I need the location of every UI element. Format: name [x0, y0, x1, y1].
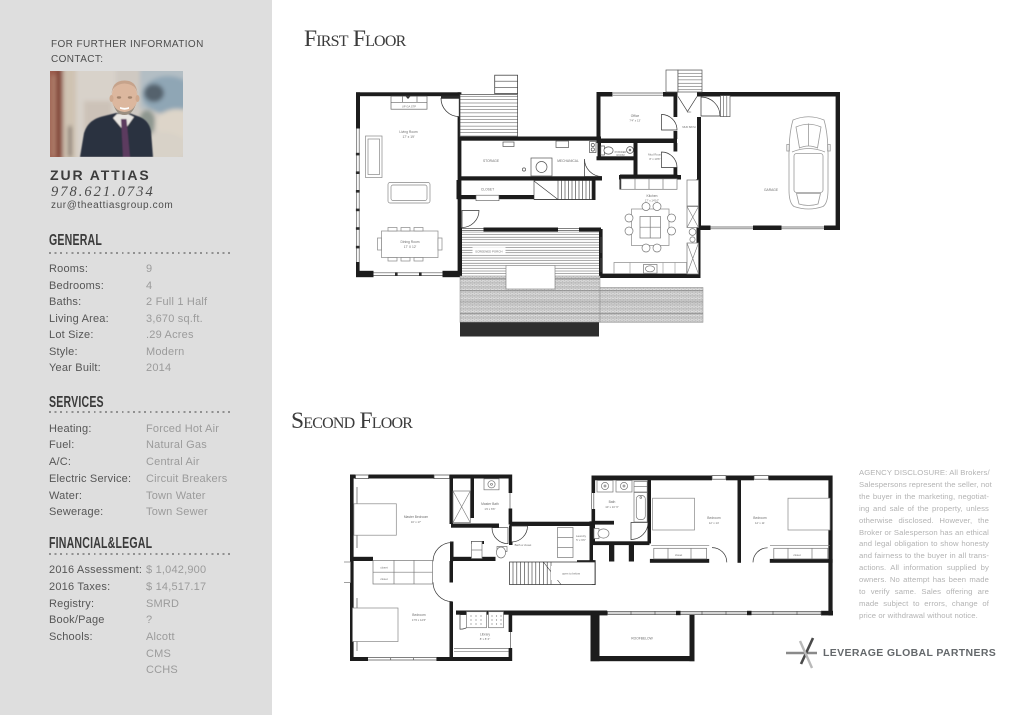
- svg-text:Master Bedroom: Master Bedroom: [404, 515, 429, 519]
- svg-text:12' x 11': 12' x 11': [755, 521, 766, 525]
- svg-text:closet: closet: [675, 553, 683, 557]
- svg-text:Library: Library: [480, 633, 490, 637]
- svg-text:WIC: WIC: [687, 112, 692, 114]
- svg-text:8' x 10'6": 8' x 10'6": [649, 157, 660, 161]
- svg-text:17' x 14'10": 17' x 14'10": [645, 199, 659, 203]
- svg-text:Office: Office: [631, 114, 640, 118]
- svg-text:Bedroom: Bedroom: [707, 516, 721, 520]
- svg-text:CLOSET: CLOSET: [481, 188, 494, 192]
- svg-text:open to below: open to below: [562, 572, 581, 576]
- svg-text:UP GA STP: UP GA STP: [402, 104, 416, 108]
- svg-text:5' x 6'6": 5' x 6'6": [576, 538, 586, 542]
- svg-text:17' X 12': 17' X 12': [404, 245, 417, 249]
- svg-text:MUD BATH: MUD BATH: [682, 125, 695, 129]
- svg-text:closet: closet: [380, 566, 388, 570]
- svg-text:Dining Room: Dining Room: [400, 240, 419, 244]
- svg-text:Bedroom: Bedroom: [412, 613, 426, 617]
- svg-text:ROOFBELOW: ROOFBELOW: [631, 637, 653, 641]
- svg-text:Bath w closet: Bath w closet: [515, 543, 532, 547]
- svg-text:1'0 x 6'6": 1'0 x 6'6": [484, 507, 495, 511]
- svg-text:Living Room: Living Room: [399, 130, 418, 134]
- svg-text:closet: closet: [380, 577, 388, 581]
- svg-text:SCREENED PORCH: SCREENED PORCH: [475, 250, 502, 254]
- svg-text:17'6 x 12'6": 17'6 x 12'6": [412, 618, 426, 622]
- svg-text:closet: closet: [793, 553, 801, 557]
- svg-text:17' x 19': 17' x 19': [402, 135, 414, 139]
- svg-text:7'4" x 13': 7'4" x 13': [629, 119, 641, 123]
- svg-text:16' x 17': 16' x 17': [411, 520, 422, 524]
- svg-text:12' x 14': 12' x 14': [709, 521, 720, 525]
- svg-text:8' x 8' 6": 8' x 8' 6": [480, 637, 490, 641]
- svg-text:MECHANICAL: MECHANICAL: [557, 159, 579, 163]
- svg-text:Kitchen: Kitchen: [647, 194, 658, 198]
- svg-text:10' x 10' 6": 10' x 10' 6": [605, 505, 619, 509]
- svg-text:Master Bath: Master Bath: [481, 502, 499, 506]
- svg-text:ROOM: ROOM: [616, 153, 624, 157]
- svg-text:Bath: Bath: [609, 500, 616, 504]
- svg-text:GARAGE: GARAGE: [764, 188, 779, 192]
- svg-text:Bedroom: Bedroom: [753, 516, 767, 520]
- svg-text:STORAGE: STORAGE: [483, 159, 500, 163]
